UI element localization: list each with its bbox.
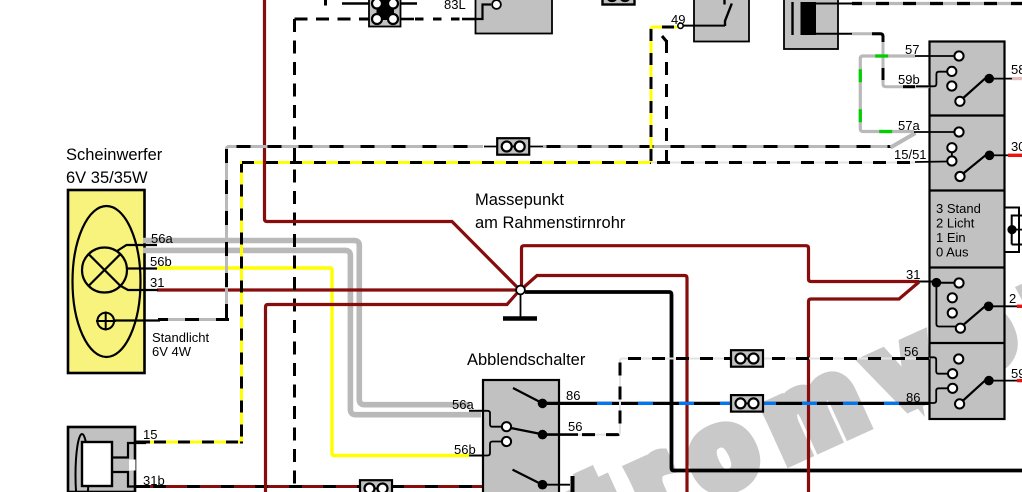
svg-text:Massepunkt: Massepunkt <box>475 191 564 209</box>
svg-text:56: 56 <box>568 419 582 434</box>
svg-text:1 Ein: 1 Ein <box>936 230 966 245</box>
svg-text:56: 56 <box>904 344 918 359</box>
svg-text:57a: 57a <box>898 118 920 133</box>
svg-text:0 Aus: 0 Aus <box>936 245 969 260</box>
svg-text:56a: 56a <box>151 231 173 246</box>
svg-text:57: 57 <box>905 42 919 57</box>
svg-text:59b: 59b <box>898 72 920 87</box>
svg-text:58: 58 <box>1011 62 1022 77</box>
svg-text:Standlicht: Standlicht <box>152 330 209 345</box>
svg-text:31: 31 <box>150 275 164 290</box>
svg-text:30: 30 <box>1011 139 1022 154</box>
svg-text:56b: 56b <box>150 254 172 269</box>
svg-text:2 Licht: 2 Licht <box>936 216 975 231</box>
svg-text:56a: 56a <box>452 397 474 412</box>
svg-text:Abblendschalter: Abblendschalter <box>467 351 586 369</box>
svg-text:86: 86 <box>566 388 580 403</box>
svg-text:31: 31 <box>906 267 920 282</box>
svg-text:15/51: 15/51 <box>894 147 927 162</box>
svg-text:6V 4W: 6V 4W <box>152 344 192 359</box>
svg-text:83L: 83L <box>444 0 466 12</box>
svg-text:3 Stand: 3 Stand <box>936 201 981 216</box>
svg-text:15: 15 <box>143 427 157 442</box>
svg-text:6V 35/35W: 6V 35/35W <box>66 169 148 187</box>
svg-text:am Rahmenstirnrohr: am Rahmenstirnrohr <box>475 214 626 232</box>
svg-text:Scheinwerfer: Scheinwerfer <box>66 146 163 164</box>
svg-text:2: 2 <box>1009 291 1016 306</box>
svg-text:59: 59 <box>1011 366 1022 381</box>
